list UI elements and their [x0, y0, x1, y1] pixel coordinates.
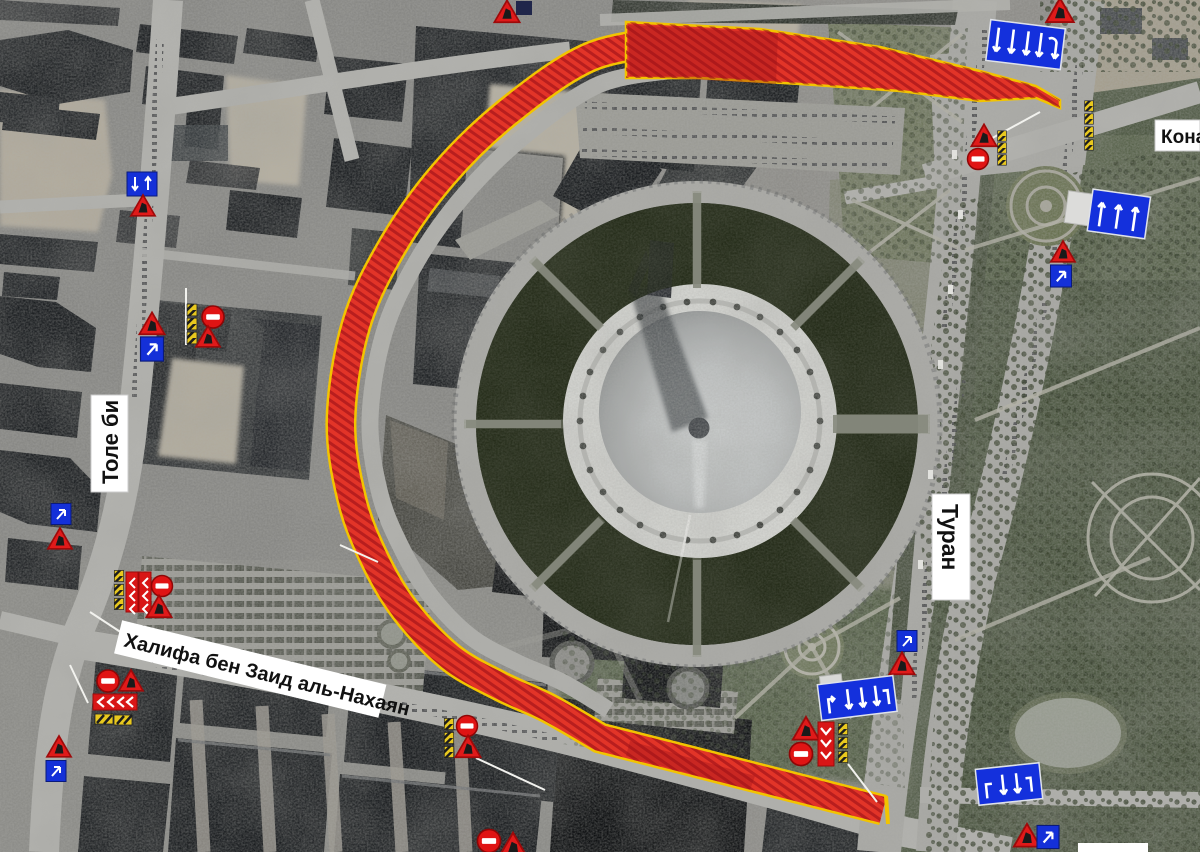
svg-text:Кона: Кона: [1161, 127, 1200, 148]
svg-text:Толе би: Толе би: [98, 400, 123, 484]
svg-text:Туран: Туран: [937, 504, 963, 570]
